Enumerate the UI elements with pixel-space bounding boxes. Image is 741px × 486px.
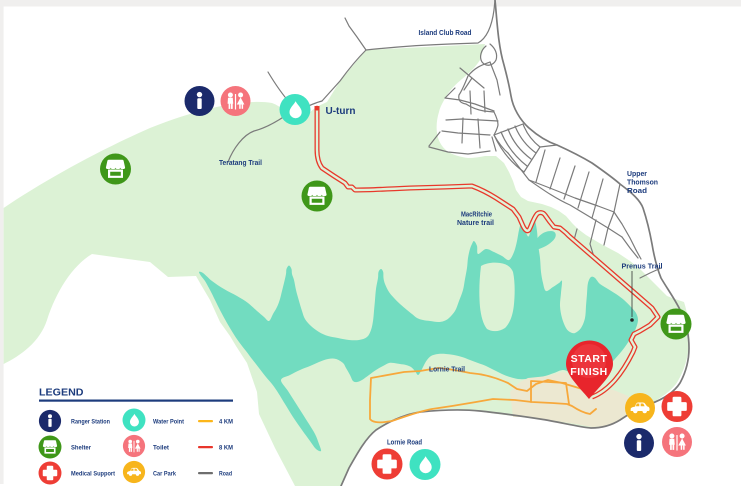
svg-text:U-turn: U-turn (326, 106, 356, 117)
svg-text:FINISH: FINISH (570, 366, 607, 378)
svg-text:Road: Road (627, 186, 647, 195)
svg-text:Road: Road (219, 472, 232, 478)
svg-text:4 KM: 4 KM (219, 420, 233, 426)
svg-text:Shelter: Shelter (71, 446, 92, 452)
svg-text:Nature trail: Nature trail (457, 218, 494, 227)
svg-text:Lornie Trail: Lornie Trail (429, 367, 465, 374)
svg-text:Island Club Road: Island Club Road (419, 28, 472, 37)
svg-text:Medical Support: Medical Support (71, 472, 115, 478)
svg-text:Ranger Station: Ranger Station (71, 420, 110, 426)
svg-text:Lornie Road: Lornie Road (387, 440, 422, 447)
svg-text:Water Point: Water Point (153, 420, 184, 426)
svg-text:Teratang Trail: Teratang Trail (219, 160, 262, 167)
svg-text:8 KM: 8 KM (219, 446, 233, 452)
svg-text:Toilet: Toilet (153, 446, 169, 452)
svg-text:Car Park: Car Park (153, 472, 177, 478)
svg-text:LEGEND: LEGEND (39, 387, 84, 399)
svg-text:Prenus Trail: Prenus Trail (622, 262, 663, 271)
svg-text:START: START (571, 353, 608, 365)
